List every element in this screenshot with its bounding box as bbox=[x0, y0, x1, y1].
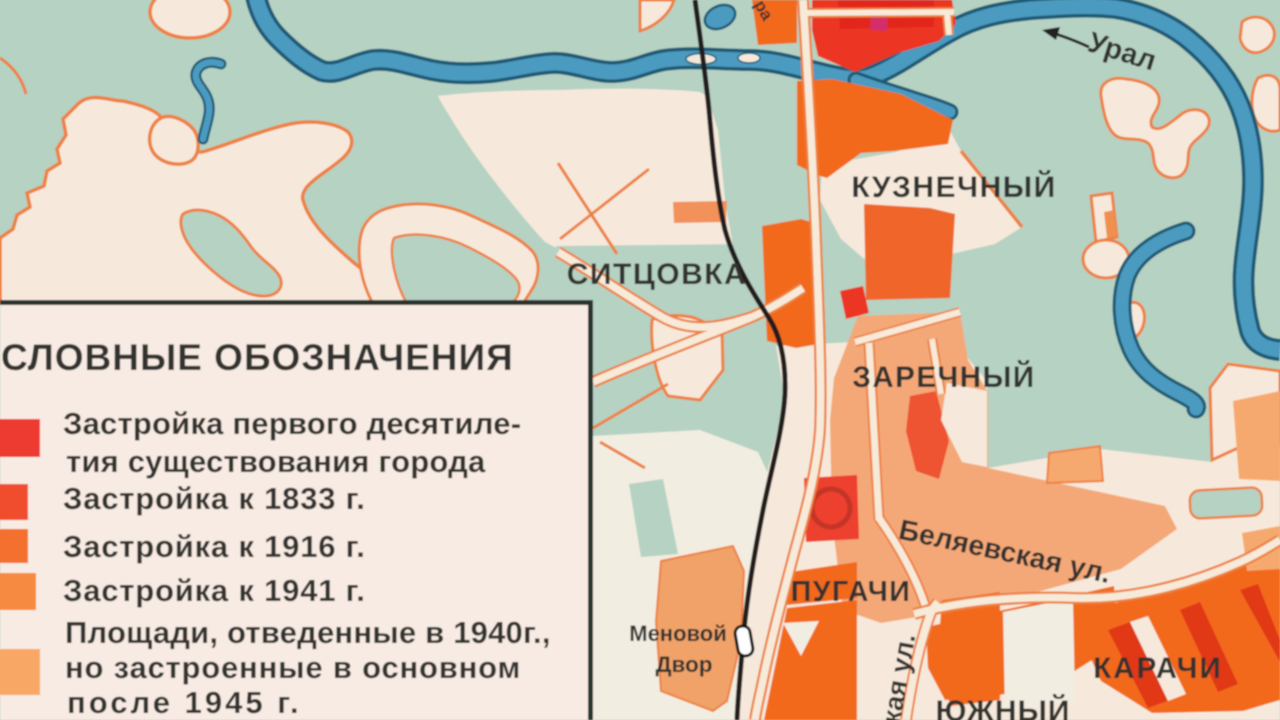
svg-text:ЮЖНЫЙ: ЮЖНЫЙ bbox=[936, 694, 1071, 720]
svg-text:СЛОВНЫЕ ОБОЗНАЧЕНИЯ: СЛОВНЫЕ ОБОЗНАЧЕНИЯ bbox=[1, 337, 514, 378]
svg-text:ПУГАЧИ: ПУГАЧИ bbox=[791, 576, 912, 608]
svg-text:Площади, отведенные в 1940г.,: Площади, отведенные в 1940г., bbox=[65, 615, 551, 650]
svg-text:но застроенные в основном: но застроенные в основном bbox=[65, 650, 521, 685]
svg-text:тия существования города: тия существования города bbox=[66, 444, 486, 479]
svg-text:КУЗНЕЧНЫЙ: КУЗНЕЧНЫЙ bbox=[851, 170, 1056, 204]
svg-text:ЗАРЕЧНЫЙ: ЗАРЕЧНЫЙ bbox=[852, 360, 1035, 394]
svg-text:Застройка к 1833 г.: Застройка к 1833 г. bbox=[63, 481, 366, 516]
svg-text:Застройка к 1916 г.: Застройка к 1916 г. bbox=[63, 529, 366, 564]
svg-text:Застройка к 1941 г.: Застройка к 1941 г. bbox=[63, 573, 366, 608]
svg-text:СИТЦОВКА: СИТЦОВКА bbox=[567, 258, 747, 291]
svg-text:Меновой: Меновой bbox=[629, 621, 727, 646]
svg-text:после 1945 г.: после 1945 г. bbox=[67, 685, 302, 720]
svg-text:Застройка первого десятиле-: Застройка первого десятиле- bbox=[63, 406, 521, 441]
svg-text:КАРАЧИ: КАРАЧИ bbox=[1093, 652, 1222, 685]
svg-text:Двор: Двор bbox=[655, 652, 712, 677]
